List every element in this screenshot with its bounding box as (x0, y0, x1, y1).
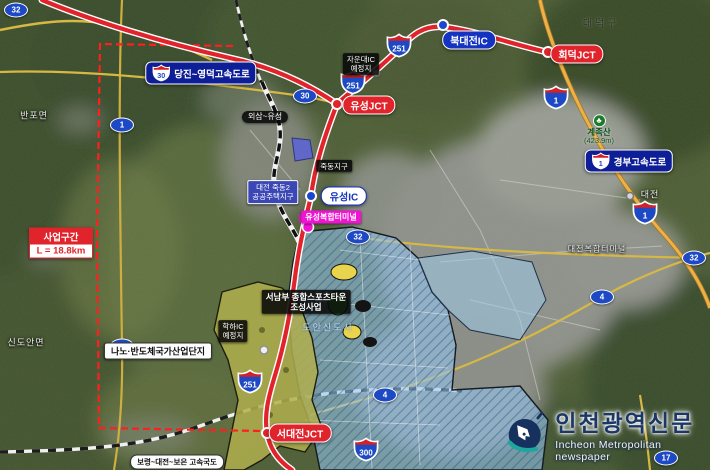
sports-town-badge: 서남부 종합스포츠타운 조성사업 (262, 290, 351, 314)
jukdong2-line1: 대전 죽동2 (252, 183, 293, 192)
bukdaejeon-ic-badge: 북대전IC (442, 31, 496, 50)
newspaper-logo-icon (504, 410, 547, 458)
hoedeok-jct-badge: 회덕JCT (550, 45, 603, 64)
expressway-1-shield-icon: 1 (592, 153, 610, 170)
svg-text:1: 1 (599, 159, 603, 168)
gyeongbu-label: 경부고속도로 (614, 154, 666, 168)
route-1-oval-shield: 1 (110, 118, 134, 133)
yuseong-terminal-badge: 유성복합터미널 (301, 211, 361, 224)
project-section-title: 사업구간 (29, 228, 93, 245)
route-4-oval-shield: 4 (590, 290, 614, 305)
jukdong-parcel (292, 138, 313, 161)
hakha-line2: 예정지 (222, 331, 243, 340)
jaundae-line2: 예정지 (347, 64, 375, 73)
route-4-oval-shield: 4 (373, 388, 397, 403)
sports-town-line1: 서남부 종합스포츠타운 (266, 291, 347, 302)
route-30-oval-shield: 30 (293, 89, 317, 104)
place-daejeon: 대전 (641, 188, 660, 201)
expressway-300-shield: 300 (353, 438, 379, 467)
route-32-oval-shield: 32 (4, 3, 28, 18)
svg-text:251: 251 (346, 82, 360, 91)
gyejoksan-elevation: (423.9m) (584, 138, 614, 146)
route-32-oval-shield: 32 (346, 230, 370, 245)
hakha-line1: 학하IC (222, 322, 243, 331)
expressway-30-shield-icon: 30 (152, 65, 170, 82)
seodaejeon-jct-badge: 서대전JCT (269, 424, 332, 443)
watermark: 인천광역신문 Incheon Metropolitan newspaper (504, 404, 710, 463)
jukdong2-housing-badge: 대전 죽동2 공공주택지구 (247, 180, 298, 204)
route-32-oval-shield: 32 (682, 251, 706, 266)
sports-town-line2: 조성사업 (266, 302, 347, 313)
boryeong-expressway-badge: 보령~대전~보은 고속국도 (130, 455, 224, 470)
oesam-yuseong-road-badge: 외삼~유성 (242, 111, 288, 123)
dangjin-yeongdeok-expressway-badge: 30 당진~영덕고속도로 (145, 62, 256, 85)
yuseong-ic-badge: 유성IC (321, 187, 367, 206)
place-sindoan: 신도안면 (7, 336, 44, 349)
dangjin-yeongdeok-label: 당진~영덕고속도로 (174, 66, 249, 80)
svg-text:30: 30 (157, 71, 165, 80)
svg-text:1: 1 (643, 211, 648, 221)
yuseong-jct-badge: 유성JCT (342, 96, 395, 115)
place-daedeok: 대덕구 (583, 15, 620, 30)
nano-complex-badge: 나노·반도체국가산업단지 (104, 343, 212, 360)
hakha-ic-planned-badge: 학하IC 예정지 (218, 320, 247, 342)
jukdong-district-badge: 죽동지구 (316, 160, 352, 172)
svg-text:1: 1 (554, 96, 559, 106)
expressway-251-shield: 251 (237, 370, 263, 399)
place-banpo: 반포면 (20, 109, 48, 122)
place-doan-newtown: 도안신도시 (302, 321, 353, 334)
svg-text:251: 251 (243, 381, 257, 390)
watermark-subtitle: Incheon Metropolitan newspaper (555, 439, 710, 463)
watermark-title: 인천광역신문 (555, 404, 710, 438)
gyeongbu-expressway-badge: 1 경부고속도로 (585, 150, 673, 173)
expressway-251-shield: 251 (386, 34, 412, 63)
gyejoksan-peak-label: ♣ 계족산 (423.9m) (584, 114, 614, 146)
project-section-length: L = 18.8km (29, 245, 93, 259)
jukdong2-line2: 공공주택지구 (252, 192, 293, 201)
svg-text:251: 251 (392, 45, 406, 54)
jaundae-line1: 자운대IC (347, 55, 375, 64)
place-daejeon-terminal: 대전복합터미널 (568, 244, 627, 255)
expressway-1-shield: 1 (543, 86, 569, 115)
tree-icon: ♣ (592, 114, 605, 127)
jaundae-ic-planned-badge: 자운대IC 예정지 (343, 53, 379, 75)
project-section-label: 사업구간 L = 18.8km (29, 228, 93, 259)
expressway-1-shield: 1 (632, 201, 658, 230)
satellite-project-map: 32 1 1 30 32 32 4 4 17 251 251 251 1 (0, 0, 710, 470)
svg-text:300: 300 (359, 449, 373, 458)
